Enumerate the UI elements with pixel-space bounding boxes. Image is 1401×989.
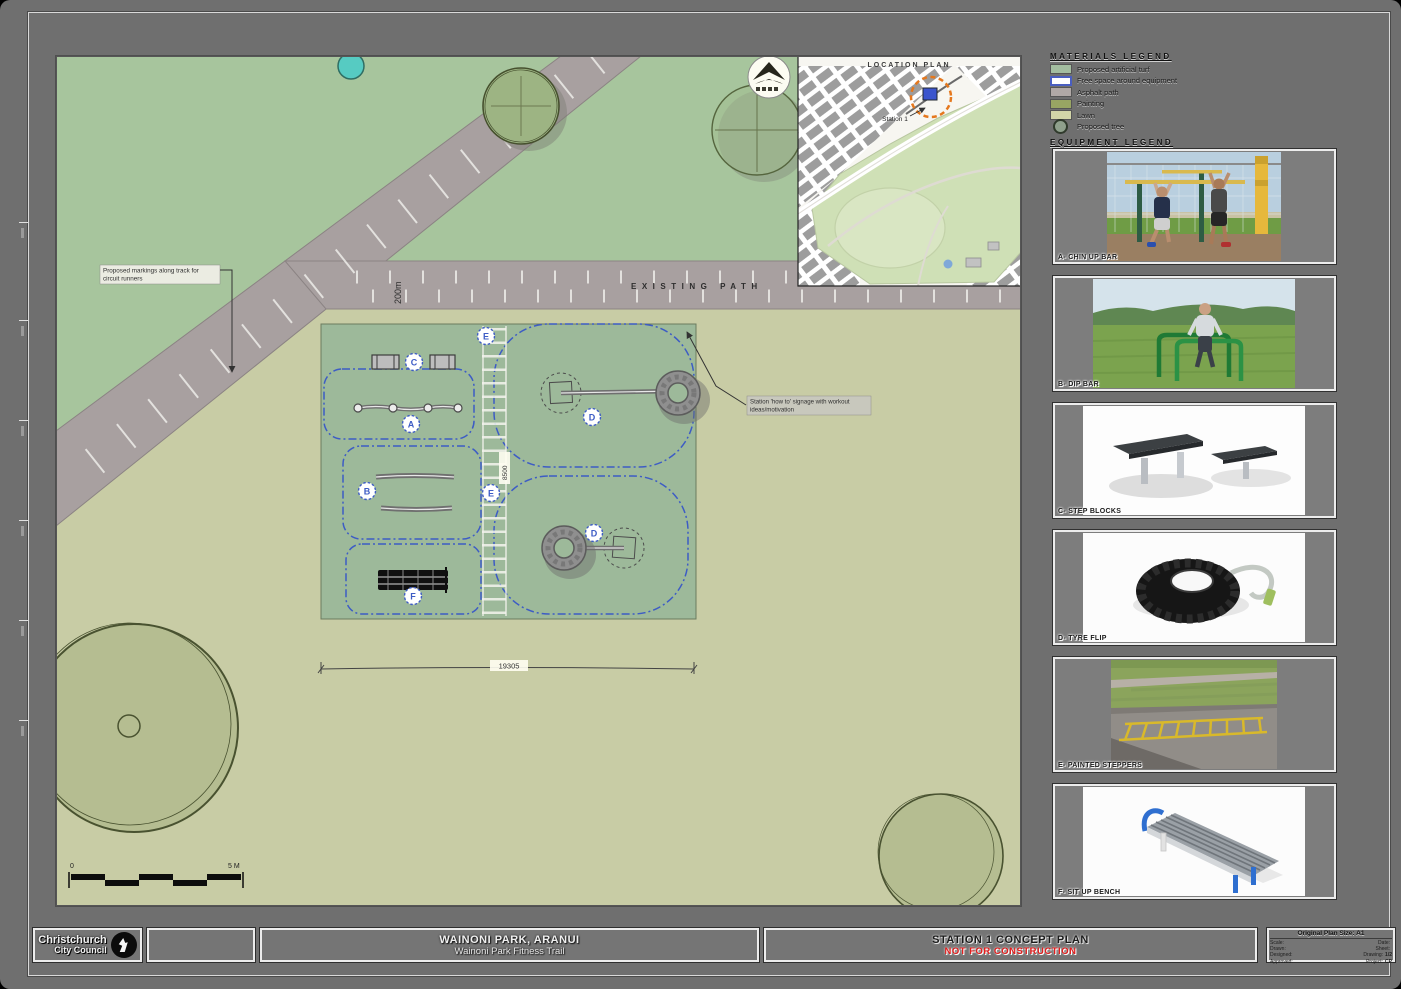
equipment-panel-sit-up-bench: F- SIT UP BENCH — [1052, 783, 1337, 900]
svg-text:circuit runners: circuit runners — [103, 276, 143, 283]
svg-text:19305: 19305 — [499, 662, 520, 671]
track-distance-label: 200m — [393, 281, 403, 304]
painting-swatch — [1050, 99, 1072, 109]
plan-drawing: EXISTING PATH 200m — [56, 56, 1021, 906]
project-name: WAINONI PARK, ARANUI — [439, 934, 579, 946]
council-logo: Christchurch City Council — [38, 935, 106, 955]
small-teal-tree — [338, 56, 364, 79]
panel-label: D- TYRE FLIP — [1058, 635, 1107, 642]
title-bar-empty-box — [146, 927, 256, 963]
marker-d2: D — [591, 529, 598, 539]
equipment-panel-painted-steppers: E- PAINTED STEPPERS — [1052, 656, 1337, 773]
panel-label: E- PAINTED STEPPERS — [1058, 762, 1142, 769]
building — [966, 258, 981, 267]
svg-text:ideas/motivation: ideas/motivation — [750, 407, 794, 414]
marker-e-top: E — [483, 332, 489, 342]
marker-b: B — [364, 487, 371, 497]
marker-a: A — [408, 420, 415, 430]
marker-e-mid: E — [488, 489, 494, 499]
step-blocks-photo — [1083, 406, 1305, 515]
location-plan-inset: Station 1 LOCATION PLAN — [798, 56, 1021, 286]
materials-legend-title: MATERIALS LEGEND — [1050, 52, 1338, 61]
not-for-construction-status: NOT FOR CONSTRUCTION — [945, 946, 1077, 957]
legend-item-turf: Proposed artificial turf — [1050, 64, 1338, 75]
location-plan-title: LOCATION PLAN — [867, 62, 950, 69]
pond — [944, 260, 953, 269]
equipment-legend-title: EQUIPMENT LEGEND — [1050, 138, 1338, 147]
dip-bar-photo — [1093, 279, 1295, 388]
panel-label: A- CHIN UP BAR — [1058, 254, 1117, 261]
council-logo-box: Christchurch City Council — [32, 927, 143, 963]
materials-legend: MATERIALS LEGEND Proposed artificial tur… — [1050, 52, 1338, 147]
legend-item-freespace: Free space around equipment — [1050, 76, 1338, 87]
panel-label: F- SIT UP BENCH — [1058, 889, 1120, 896]
north-arrow-icon — [748, 56, 790, 98]
legend-item-painting: Painting — [1050, 99, 1338, 110]
marker-d1: D — [589, 413, 596, 423]
painted-steppers-photo — [1111, 660, 1277, 769]
legend-item-lawn: Lawn — [1050, 110, 1338, 121]
chin-up-bar-photo — [1107, 152, 1281, 261]
sheet-title: STATION 1 CONCEPT PLAN — [932, 934, 1089, 946]
sit-up-bench-photo — [1083, 787, 1305, 896]
equipment-panel-step-blocks: C- STEP BLOCKS — [1052, 402, 1337, 519]
equipment-panel-tyre-flip: D- TYRE FLIP — [1052, 529, 1337, 646]
project-subtitle: Wainoni Park Fitness Trail — [455, 946, 565, 957]
plan-info-box: Original Plan Size: A1 Scale: Date: Draw… — [1266, 927, 1396, 963]
building — [988, 242, 999, 250]
legend-item-asphalt: Asphalt path — [1050, 87, 1338, 98]
turf-swatch — [1050, 64, 1072, 74]
tree-icon — [1053, 119, 1068, 134]
equipment-panel-dip-bar: B- DIP BAR — [1052, 275, 1337, 392]
panel-label: B- DIP BAR — [1058, 381, 1099, 388]
original-plan-size: Original Plan Size: A1 — [1270, 930, 1392, 939]
svg-text:Station 'how to' signage with: Station 'how to' signage with workout — [750, 399, 850, 406]
concept-plan-view: EXISTING PATH 200m — [55, 55, 1022, 907]
sheet-title-box: STATION 1 CONCEPT PLAN NOT FOR CONSTRUCT… — [763, 927, 1258, 963]
info-row: Approved: Project:CP — [1270, 959, 1392, 965]
dimension-height: 8500 — [499, 452, 510, 484]
freespace-swatch — [1050, 76, 1072, 86]
svg-text:8500: 8500 — [502, 465, 509, 480]
asphalt-swatch — [1050, 87, 1072, 97]
tyre-flip-photo — [1083, 533, 1305, 642]
legend-item-tree: Proposed tree — [1050, 122, 1338, 133]
marker-c: C — [411, 358, 418, 368]
existing-path-label: EXISTING PATH — [631, 282, 763, 291]
svg-text:5 M: 5 M — [228, 863, 240, 870]
equipment-panel-chin-up-bar: A- CHIN UP BAR — [1052, 148, 1337, 265]
marker-f: F — [410, 592, 416, 602]
station-marker — [923, 88, 937, 100]
svg-text:Proposed markings along track: Proposed markings along track for — [103, 268, 199, 275]
drawing-sheet: EXISTING PATH 200m — [0, 0, 1401, 989]
project-title-box: WAINONI PARK, ARANUI Wainoni Park Fitnes… — [259, 927, 760, 963]
panel-label: C- STEP BLOCKS — [1058, 508, 1121, 515]
council-emblem-icon — [111, 932, 137, 958]
station-label: Station 1 — [882, 116, 908, 123]
svg-text:0: 0 — [70, 863, 74, 870]
